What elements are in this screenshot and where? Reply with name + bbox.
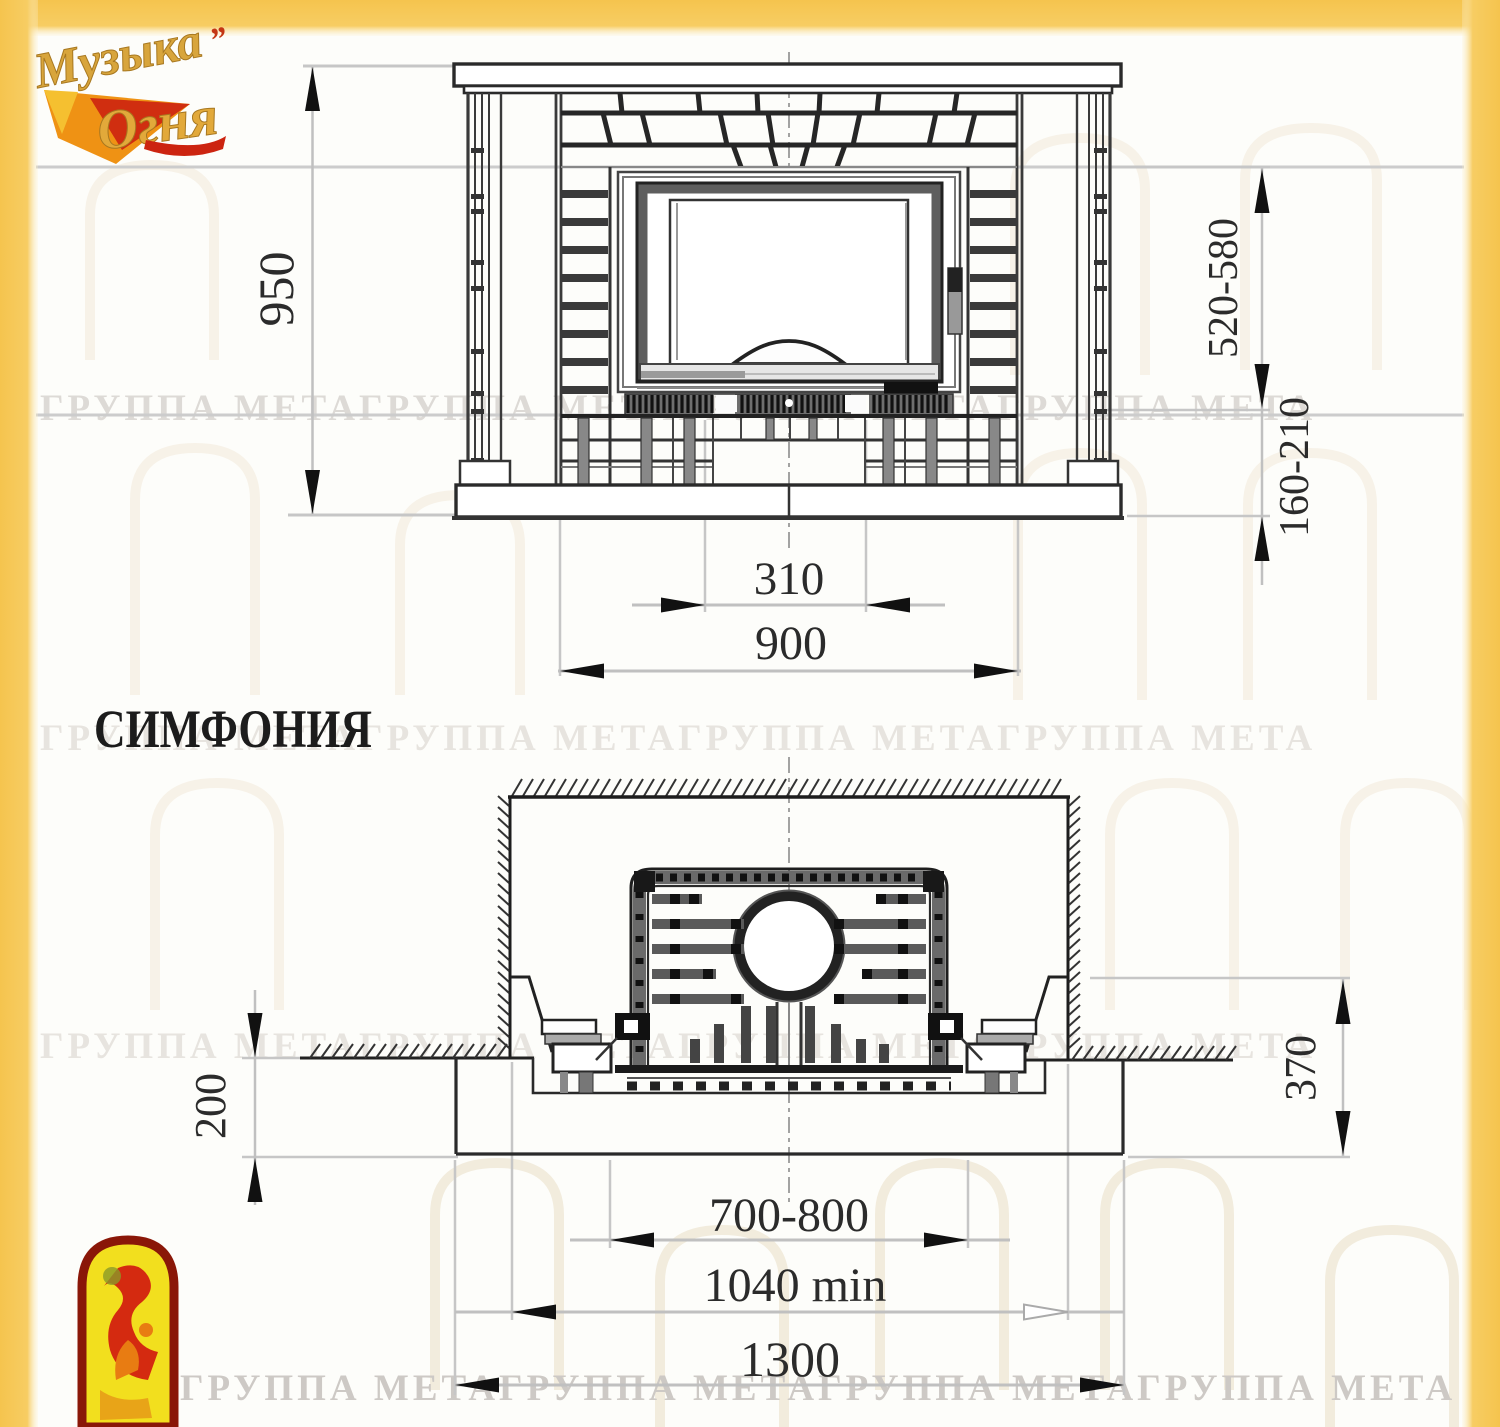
svg-text:520-580: 520-580 [1201, 218, 1247, 358]
svg-text:200: 200 [186, 1073, 235, 1139]
svg-text:1300: 1300 [740, 1331, 840, 1387]
svg-text:950: 950 [248, 252, 304, 327]
svg-text:160-210: 160-210 [1272, 397, 1318, 537]
svg-text:900: 900 [755, 617, 827, 670]
svg-text:1040 min: 1040 min [704, 1259, 887, 1312]
svg-text:370: 370 [1276, 1035, 1325, 1101]
svg-text:310: 310 [754, 553, 825, 605]
svg-text:700-800: 700-800 [709, 1189, 869, 1242]
svg-text:СИМФОНИЯ: СИМФОНИЯ [94, 699, 372, 759]
